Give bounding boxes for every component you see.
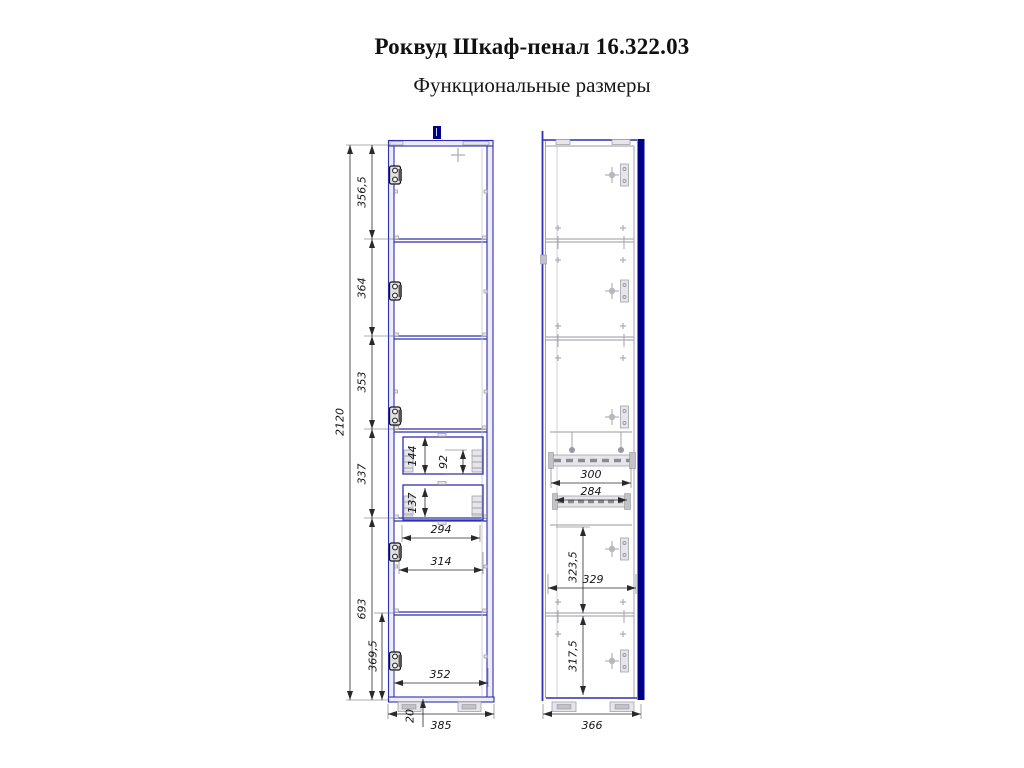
fitting (612, 140, 630, 145)
side-hinges (605, 164, 629, 672)
shelf-end-marks (395, 190, 488, 658)
dim-third-section: 353 (356, 372, 369, 393)
dim-shelf-depth: 329 (583, 573, 604, 586)
hinge-icon (390, 543, 403, 561)
dim-bottom-compartment: 369,5 (367, 640, 380, 672)
dim-top-section: 356,5 (356, 176, 369, 208)
hinge-icon (390, 166, 403, 184)
wall-bracket-icon (433, 126, 441, 139)
dim-upper-drawer-box: 92 (437, 455, 450, 469)
front-right-panel (487, 141, 493, 702)
fitting (463, 142, 489, 146)
fitting (556, 140, 570, 145)
dim-lower-section: 693 (356, 599, 369, 620)
dim-drawer-opening-width: 294 (431, 523, 452, 536)
drawing-page: Роквуд Шкаф-пенал 16.322.03 Функциональн… (0, 0, 1024, 768)
hinge-hardware-icon (605, 280, 629, 302)
hinge-hardware-icon (605, 650, 629, 672)
dim-lower-drawer: 137 (406, 493, 419, 514)
dim-bottom-panel-thickness: 20 (404, 709, 417, 723)
front-bottom-panel (389, 697, 495, 702)
dim-bottom-compartment-side: 317,5 (567, 640, 580, 672)
hinge-hardware-icon (605, 538, 629, 560)
dim-bottom-opening-width: 352 (430, 668, 451, 681)
dim-second-section: 364 (356, 278, 369, 299)
fitting (390, 142, 403, 146)
hinge-icon (390, 407, 403, 425)
wall-bracket-icon (541, 255, 547, 264)
dim-overall-width: 385 (431, 719, 452, 732)
side-view: 300 284 323,5 329 317,5 366 (541, 131, 645, 732)
hinge-icon (390, 282, 403, 300)
dim-lower-slide-length: 284 (581, 485, 602, 498)
dim-middle-compartment: 323,5 (567, 551, 580, 583)
hinge-hardware-icon (605, 406, 629, 428)
dim-drawer-front-width: 314 (431, 555, 452, 568)
dim-drawer-section: 337 (356, 464, 369, 485)
door-slab (638, 139, 645, 700)
technical-drawing: 2120 356,5 364 353 337 693 369,5 144 (0, 0, 1024, 768)
front-view: 2120 356,5 364 353 337 693 369,5 144 (334, 126, 495, 732)
front-dimensions: 2120 356,5 364 353 337 693 369,5 144 (334, 145, 495, 732)
dim-upper-drawer: 144 (406, 446, 419, 467)
hinge-icon (390, 652, 403, 670)
cam-cross-icon (451, 148, 465, 162)
dim-overall-depth: 366 (582, 719, 603, 732)
dim-overall-height: 2120 (334, 408, 347, 436)
hinge-hardware-icon (605, 164, 629, 186)
side-feet (552, 702, 634, 712)
dim-upper-slide-length: 300 (581, 468, 602, 481)
